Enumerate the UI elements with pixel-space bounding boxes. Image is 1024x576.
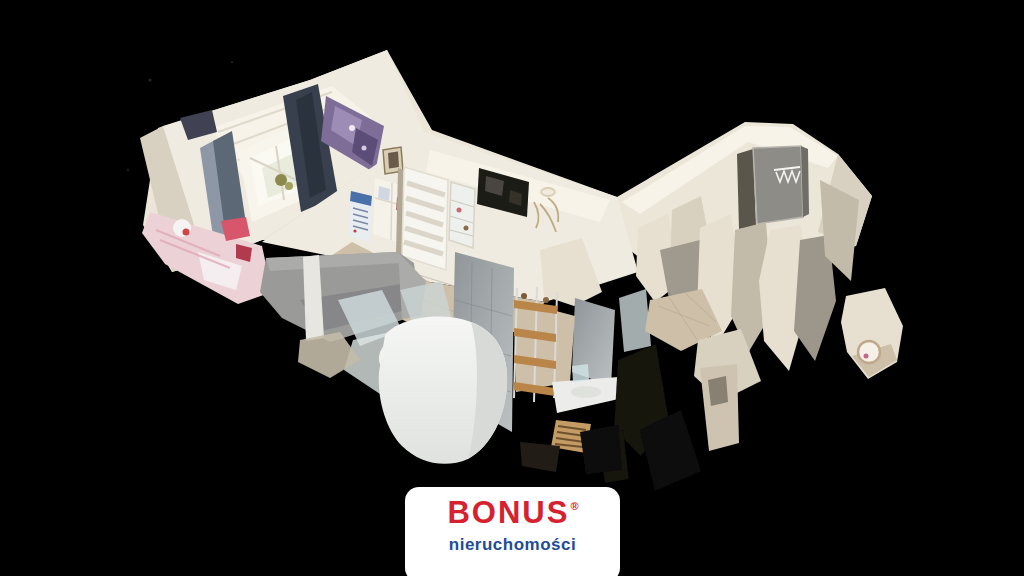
bathroom-floor [514, 300, 575, 392]
wall-calendar [349, 191, 372, 242]
interior-door [396, 167, 448, 270]
round-mirror [858, 341, 880, 363]
watermark-card: BONUS® nieruchomości [405, 487, 620, 576]
brand-text: BONUS [447, 495, 569, 530]
floating-wall-fragment [841, 288, 903, 379]
brand-subtitle: nieruchomości [449, 535, 576, 554]
brand-wordmark: BONUS® [447, 498, 577, 534]
screenshot-root: { "page": { "background": "#000000", "wi… [0, 0, 1024, 576]
lone-cream-fragment [700, 364, 739, 451]
registered-trademark-icon: ® [570, 500, 578, 512]
entrance-door [737, 146, 809, 229]
display-cabinet [449, 182, 475, 248]
